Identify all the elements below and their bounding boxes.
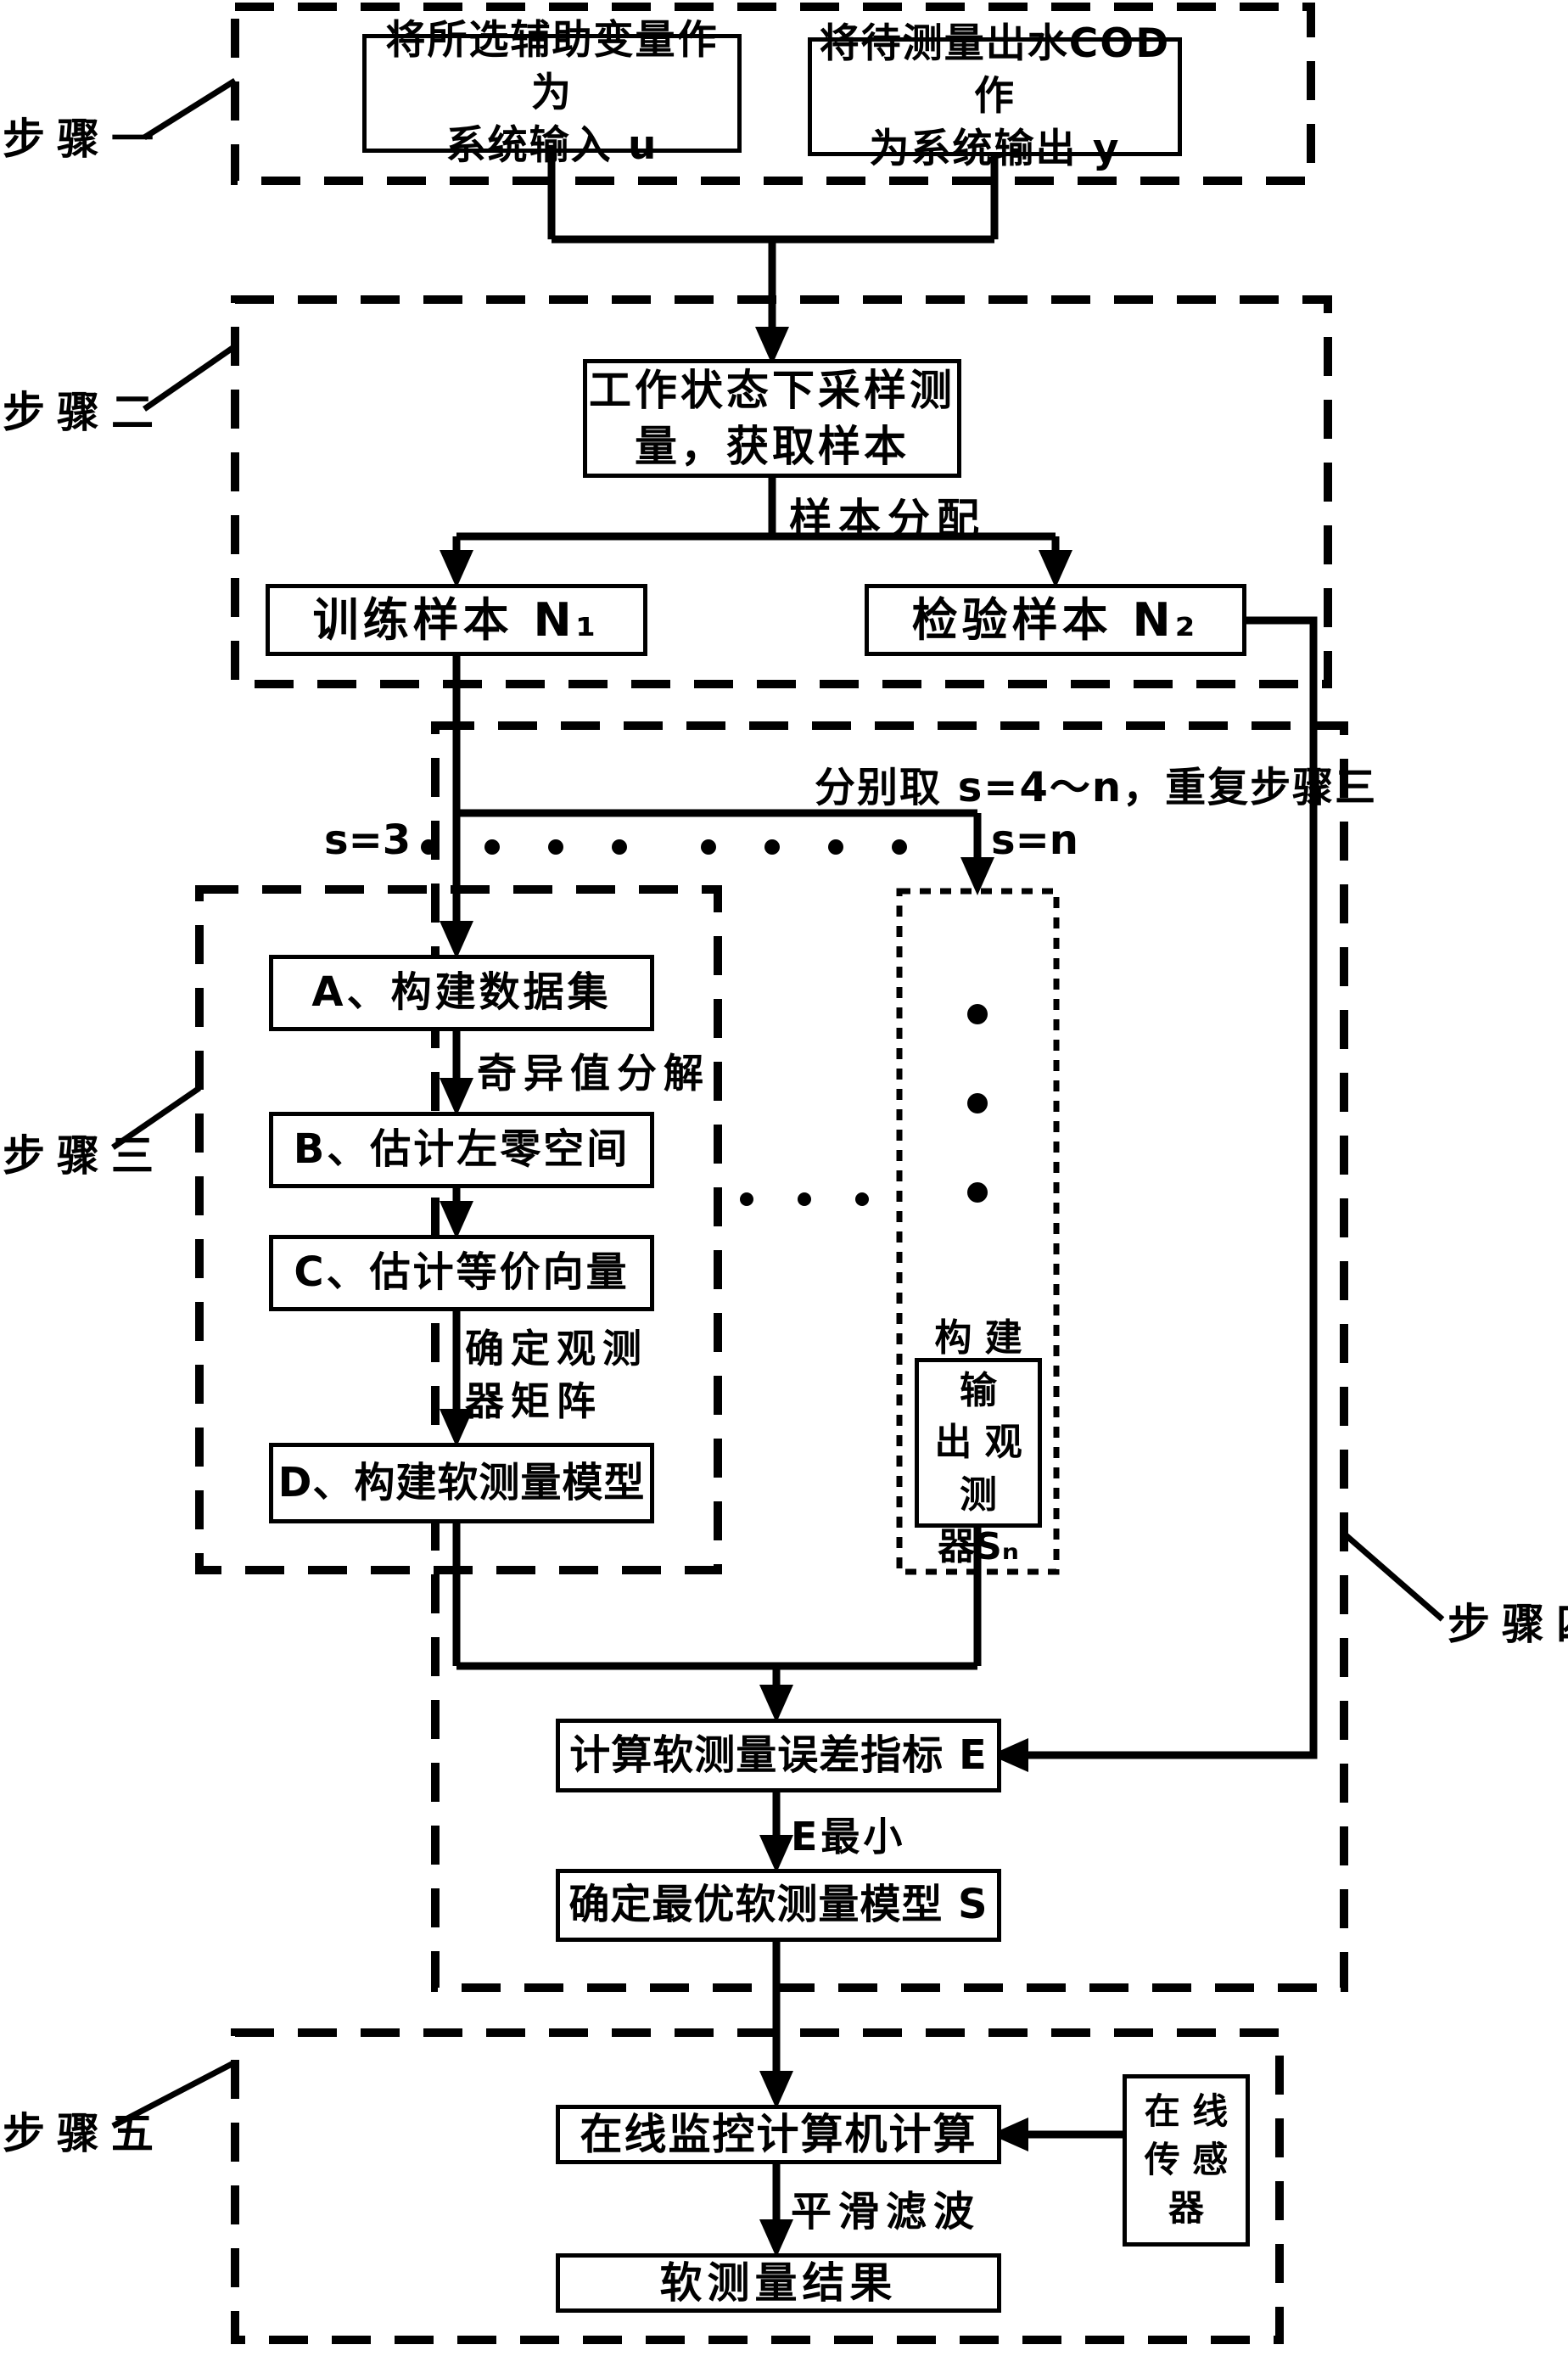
arrow-into-a [440,921,473,959]
observer-matrix-label: 确定观测 器矩阵 [465,1322,648,1428]
flowchart-wires [0,0,1568,2356]
input-variables-line1: 将所选辅助变量作为 [367,14,737,120]
sampling-line1: 工作状态下采样测 [589,362,955,418]
sample-alloc-label: 样本分配 [789,485,986,547]
sampling-line2: 量，获取样本 [635,418,910,474]
e-min-label: E最小 [791,1806,905,1862]
train-samples-box: 训练样本 N₁ [266,584,647,656]
arrow-into-error [759,1685,793,1723]
soft-result-box: 软测量结果 [556,2253,1001,2313]
flowchart-canvas: 步骤一 步骤二 步骤三 步骤四 步骤五 将所选辅助变量作为 系统输入 u 将待测… [0,0,1568,2356]
output-cod-line2: 为系统输出 y [870,123,1121,176]
test-samples-box: 检验样本 N₂ [865,584,1246,656]
arrow-a-b [440,1078,473,1116]
step-c-box: C、估计等价向量 [269,1235,654,1311]
online-sensor-line2: 传 感 [1145,2136,1229,2185]
online-sensor-box: 在 线 传 感 器 [1123,2074,1250,2247]
train-samples-label: 训练样本 N₁ [313,590,601,650]
step-c-label: C、估计等价向量 [294,1246,629,1299]
step4-pointer-line [1344,1534,1442,1619]
sampling-box: 工作状态下采样测 量，获取样本 [583,359,961,478]
error-index-box: 计算软测量误差指标 E [556,1719,1001,1792]
input-variables-box: 将所选辅助变量作为 系统输入 u [362,34,742,153]
observer-sn-line1: 构 建 输 [919,1312,1038,1416]
online-computer-box: 在线监控计算机计算 [556,2105,1001,2164]
smooth-filter-label: 平滑滤波 [791,2178,981,2237]
optimal-model-label: 确定最优软测量模型 S [568,1878,988,1932]
step-a-label: A、构建数据集 [311,966,611,1019]
step-a-box: A、构建数据集 [269,955,654,1031]
output-cod-box: 将待测量出水COD作 为系统输出 y [808,37,1182,156]
observer-sn-line2: 出 观 测 [919,1416,1038,1521]
observer-matrix-line1: 确定观测 [465,1322,648,1375]
step-b-label: B、估计左零空间 [294,1123,630,1176]
arrow-b-c [440,1201,473,1239]
repeat-note-label: 分别取 s=4～n，重复步骤三 [815,754,1377,813]
step-b-box: B、估计左零空间 [269,1112,654,1188]
observer-sn-line3: 器Sₙ [938,1521,1019,1573]
step3-label: 步骤三 [3,1122,165,1183]
observer-matrix-line2: 器矩阵 [465,1375,648,1428]
arrow-optimal-online [759,2071,793,2109]
observer-sn-box: 构 建 输 出 观 测 器Sₙ [915,1358,1042,1528]
output-cod-line1: 将待测量出水COD作 [812,18,1178,123]
step5-label: 步骤五 [3,2100,165,2161]
soft-result-label: 软测量结果 [660,2255,898,2311]
step-d-box: D、构建软测量模型 [269,1443,654,1523]
arrow-into-test [1039,550,1072,588]
step1-label: 步骤一 [3,105,165,166]
online-computer-label: 在线监控计算机计算 [580,2106,977,2162]
arrow-into-train [440,550,473,588]
sn-branch-label: s=n [991,816,1078,864]
arrow-online-result [759,2219,793,2258]
test-samples-label: 检验样本 N₂ [912,590,1200,650]
svd-label: 奇异值分解 [477,1041,710,1099]
online-sensor-line3: 器 [1168,2185,1204,2233]
error-index-label: 计算软测量误差指标 E [569,1729,988,1782]
online-sensor-line1: 在 线 [1145,2088,1229,2136]
arrow-error-optimal [759,1835,793,1873]
s3-branch-label: s=3 [324,816,411,864]
step4-label: 步骤四 [1448,1590,1568,1652]
input-variables-line2: 系统输入 u [446,120,658,172]
step-d-label: D、构建软测量模型 [278,1456,646,1510]
optimal-model-box: 确定最优软测量模型 S [556,1869,1001,1942]
step2-label: 步骤二 [3,379,165,440]
